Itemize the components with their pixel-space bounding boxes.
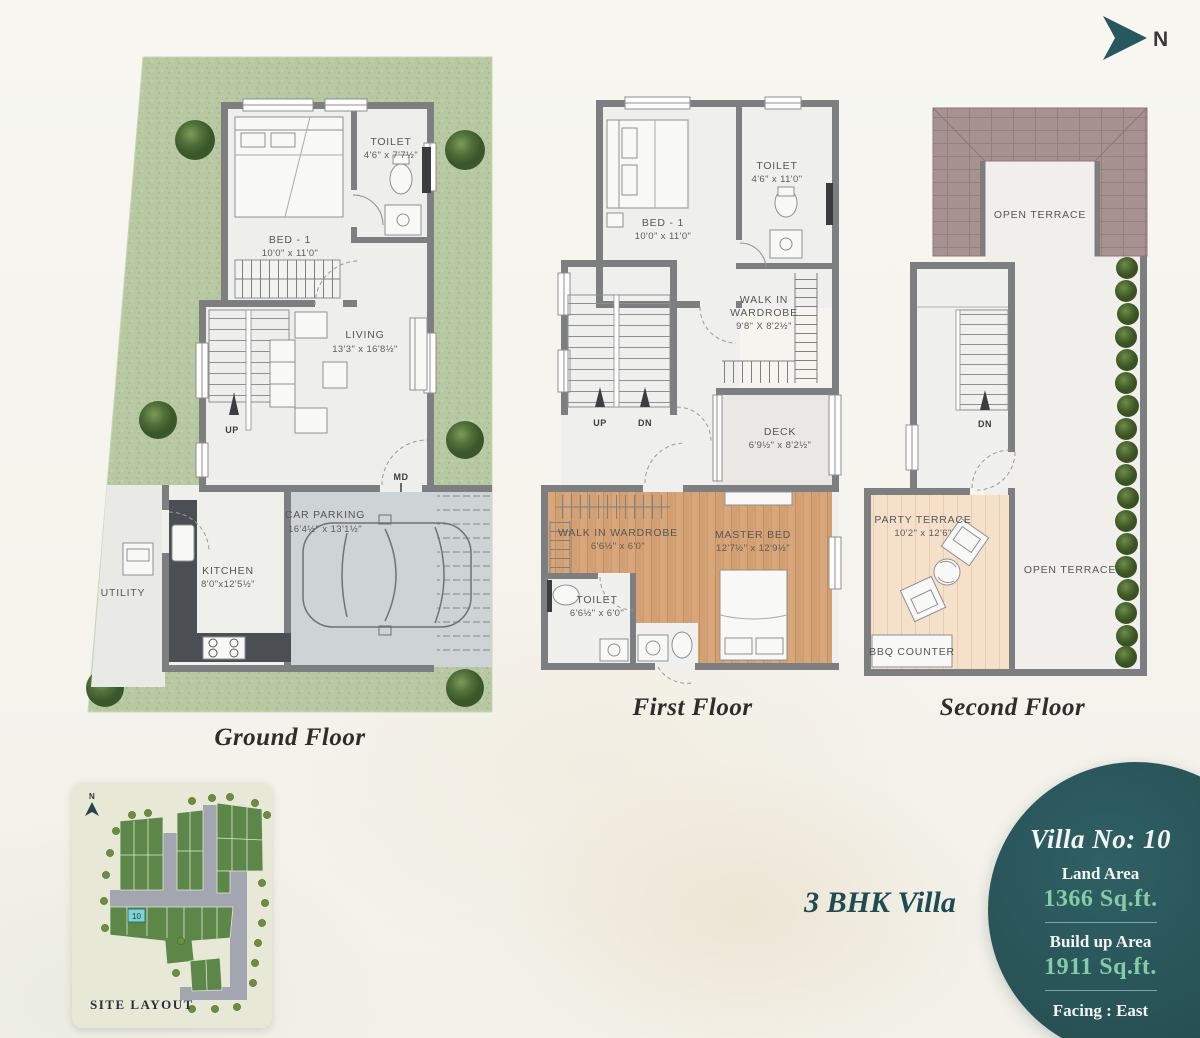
ff-wiw-top-l2: WARDROBE <box>730 307 798 319</box>
first-floor-title: First Floor <box>540 694 845 722</box>
gf-parking-dim: 16'4½" x 13'1½" <box>288 524 362 535</box>
gf-bed1-dim: 10'0" x 11'0" <box>262 248 319 259</box>
gf-toilet-label: TOILET <box>370 136 411 148</box>
north-arrow: N <box>1095 12 1195 72</box>
site-north-label: N <box>89 792 95 801</box>
ff-bed1-dim: 10'0" x 11'0" <box>635 231 692 242</box>
build-area-value: 1911 Sq.ft. <box>1008 954 1193 981</box>
gf-up-label: UP <box>225 425 239 435</box>
stove-icon <box>203 637 245 659</box>
ff-master-label: MASTER BED <box>715 529 791 541</box>
ff-deck-dim: 6'9½" x 8'2½" <box>749 440 812 451</box>
second-floor-plan: OPEN TERRACE PARTY TERRACE 10'2" x 12'6"… <box>860 105 1165 722</box>
gf-kitchen-dim: 8'0"x12'5½" <box>201 579 255 590</box>
ground-floor-plan: BED - 1 10'0" x 11'0" TOILET 4'6" x 7'7½… <box>85 55 495 752</box>
land-area-label: Land Area <box>1008 864 1193 884</box>
gf-kitchen-label: KITCHEN <box>202 565 254 577</box>
bed-furniture <box>235 117 343 217</box>
ff-up-label: UP <box>593 418 607 428</box>
plot-number: 10 <box>132 912 141 921</box>
divider <box>1045 990 1157 991</box>
divider <box>1045 922 1157 923</box>
ff-wiw-dim: 6'6½" x 6'0" <box>591 541 645 552</box>
ff-deck-label: DECK <box>764 426 796 438</box>
ff-master-dim: 12'7½" x 12'9½" <box>716 543 790 554</box>
highlighted-plot: 10 <box>128 909 145 922</box>
gf-living-dim: 13'3" x 16'8½" <box>332 344 398 355</box>
north-label: N <box>1153 28 1168 51</box>
gf-md-label: MD <box>394 472 409 482</box>
round-table <box>934 559 960 585</box>
utility-appliance <box>123 543 153 575</box>
gf-utility-label: UTILITY <box>101 587 146 599</box>
gf-bed1-label: BED - 1 <box>269 234 311 246</box>
north-arrow-icon <box>1103 16 1147 60</box>
build-area-label: Build up Area <box>1008 932 1193 952</box>
villa-number: Villa No: 10 <box>1008 824 1193 855</box>
ff-wiw-top-dim: 9'8" X 8'2½" <box>736 321 792 332</box>
ff-toilet2-dim: 6'6½" x 6'0" <box>570 608 624 619</box>
ground-floor-title: Ground Floor <box>85 724 495 752</box>
gf-toilet-dim: 4'6" x 7'7½" <box>364 150 418 161</box>
ff-toilet2-label: TOILET <box>576 594 617 606</box>
staircase <box>906 269 1008 488</box>
staircase <box>568 295 670 407</box>
ff-wiw-top-l1: WALK IN <box>740 294 788 306</box>
gf-parking-label: CAR PARKING <box>285 509 365 521</box>
first-floor-plan: BED - 1 10'0" x 11'0" TOILET 4'6" x 11'0… <box>540 95 845 722</box>
villa-info-block: Villa No: 10 Land Area 1366 Sq.ft. Build… <box>1008 824 1193 1021</box>
gf-living-label: LIVING <box>345 329 384 341</box>
wardrobe-hatch <box>235 260 340 298</box>
site-layout-panel: N <box>72 783 272 1028</box>
ff-toilet-dim: 4'6" x 11'0" <box>752 174 803 185</box>
brochure-canvas: N <box>0 0 1200 1038</box>
sf-bbq-label: BBQ COUNTER <box>869 646 955 658</box>
bhk-title: 3 BHK Villa <box>790 886 970 920</box>
sf-party-label: PARTY TERRACE <box>874 514 971 526</box>
ff-dn-label: DN <box>638 418 652 428</box>
sf-dn-label: DN <box>978 419 992 429</box>
land-area-value: 1366 Sq.ft. <box>1008 886 1193 913</box>
site-north-arrow: N <box>85 792 99 816</box>
sf-terrace-top-label: OPEN TERRACE <box>994 209 1086 221</box>
ff-toilet-label: TOILET <box>756 160 797 172</box>
sf-party-dim: 10'2" x 12'6" <box>894 528 951 539</box>
sf-terrace-right-label: OPEN TERRACE <box>1024 564 1116 576</box>
site-layout-title: SITE LAYOUT <box>90 997 194 1012</box>
second-floor-title: Second Floor <box>860 694 1165 722</box>
ff-bed1-label: BED - 1 <box>642 217 684 229</box>
facing-value: Facing : East <box>1008 1001 1193 1021</box>
ff-wiw-label: WALK IN WARDROBE <box>558 527 678 539</box>
